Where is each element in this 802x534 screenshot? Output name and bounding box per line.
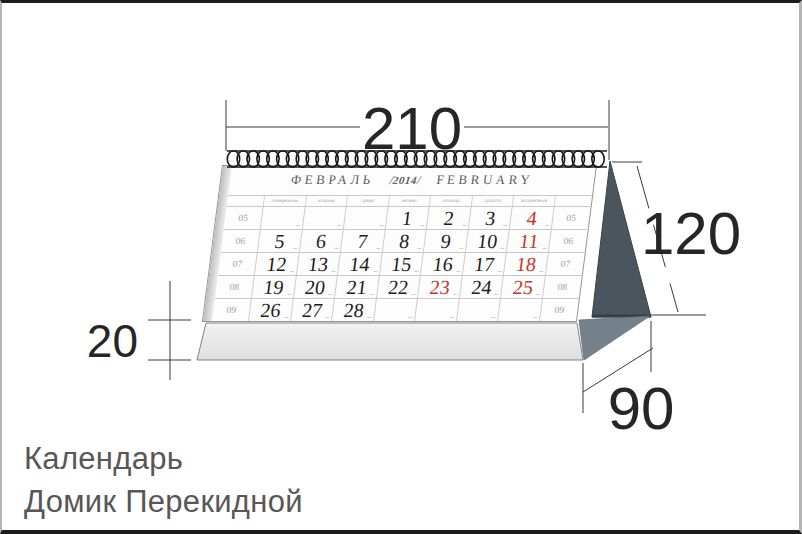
dimension-base-height-label: 20 bbox=[52, 318, 138, 364]
product-title: Календарь Домик Перекидной bbox=[24, 437, 303, 523]
diagram-stage: ФЕВРАЛЬ /2014/ FEBRUARY понедельниквторн… bbox=[0, 0, 802, 534]
dimension-depth-label: 90 bbox=[598, 379, 684, 439]
dimension-width-label: 210 bbox=[330, 99, 494, 159]
product-title-line2: Домик Перекидной bbox=[24, 480, 303, 523]
dimension-height-label: 120 bbox=[641, 204, 741, 264]
product-title-line1: Календарь bbox=[24, 437, 303, 480]
